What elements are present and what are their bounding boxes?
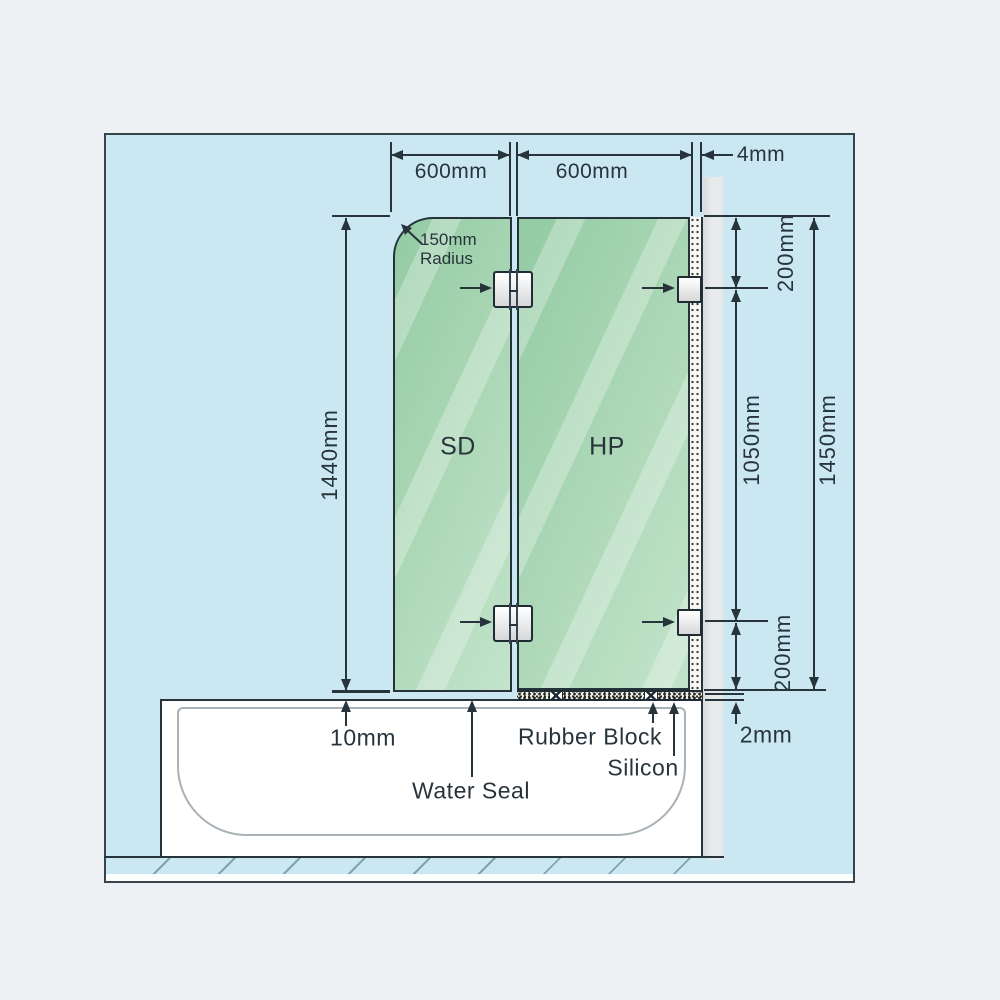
rubber-block-label: Rubber Block bbox=[518, 724, 662, 751]
radius-word: Radius bbox=[420, 250, 477, 269]
arrow bbox=[731, 218, 741, 230]
floor-strip bbox=[106, 874, 853, 881]
radius-value: 150mm bbox=[420, 231, 477, 250]
arrow bbox=[480, 617, 492, 627]
floor-hatch bbox=[106, 858, 709, 874]
gap-line bbox=[705, 693, 744, 695]
hinge-notch bbox=[509, 624, 518, 626]
dim-panel1-width-label: 600mm bbox=[415, 160, 488, 184]
radius-callout: 150mm Radius bbox=[420, 231, 477, 268]
dim-line-bracket-spacing bbox=[735, 290, 737, 621]
bracket-pointer-line bbox=[642, 287, 665, 289]
arrow bbox=[680, 150, 692, 160]
silicon-label: Silicon bbox=[607, 755, 678, 782]
arrow bbox=[809, 218, 819, 230]
dim-top-offset-label: 200mm bbox=[773, 214, 799, 292]
dim-bracket-spacing-label: 1050mm bbox=[739, 394, 765, 486]
reference-line-top bbox=[704, 215, 830, 217]
hinge-notch bbox=[509, 290, 518, 292]
rubber-block-1 bbox=[549, 691, 563, 700]
arrow bbox=[391, 150, 403, 160]
dim-panel-height-label: 1450mm bbox=[815, 394, 841, 486]
arrow bbox=[731, 609, 741, 621]
arrow bbox=[809, 677, 819, 689]
arrow bbox=[517, 150, 529, 160]
arrow bbox=[341, 679, 351, 691]
dim-line-panel2 bbox=[517, 154, 692, 156]
wall-section bbox=[703, 177, 723, 860]
rubber-block-2 bbox=[644, 691, 658, 700]
dim-line-seal-gap bbox=[735, 713, 737, 724]
panel-label-hp: HP bbox=[589, 433, 625, 462]
annotation-line bbox=[673, 713, 675, 756]
arrow bbox=[663, 283, 675, 293]
arrow bbox=[702, 150, 714, 160]
wall-bracket-bottom bbox=[677, 609, 702, 636]
hinge-pointer-line bbox=[460, 287, 482, 289]
wall-bracket-top bbox=[677, 276, 702, 303]
dim-bottom-offset-label: 200mm bbox=[770, 614, 796, 692]
arrow bbox=[731, 677, 741, 689]
bracket-pointer-line bbox=[642, 621, 665, 623]
arrow bbox=[731, 276, 741, 288]
hinge-pointer-line bbox=[460, 621, 482, 623]
arrow bbox=[731, 623, 741, 635]
dim-seal-gap-label: 2mm bbox=[740, 722, 793, 749]
dim-door-height-label: 1440mm bbox=[317, 409, 343, 501]
tick-line bbox=[332, 215, 390, 217]
silicon-strip-bottom bbox=[517, 690, 702, 701]
arrow bbox=[498, 150, 510, 160]
dim-wall-gap-label: 4mm bbox=[737, 143, 785, 167]
panel-label-sd: SD bbox=[440, 433, 476, 462]
annotation-line bbox=[471, 711, 473, 777]
arrow bbox=[663, 617, 675, 627]
water-seal-label: Water Seal bbox=[412, 778, 530, 805]
dim-line-panel1 bbox=[391, 154, 510, 156]
dim-door-bottom-gap-label: 10mm bbox=[330, 725, 396, 752]
arrow bbox=[480, 283, 492, 293]
reference-line-bottom bbox=[704, 689, 826, 691]
gap-line bbox=[705, 699, 744, 701]
arrow bbox=[341, 218, 351, 230]
dim-panel2-width-label: 600mm bbox=[556, 160, 629, 184]
arrow bbox=[731, 290, 741, 302]
annotation-line bbox=[652, 713, 654, 723]
dim-line-door-height bbox=[345, 218, 347, 691]
